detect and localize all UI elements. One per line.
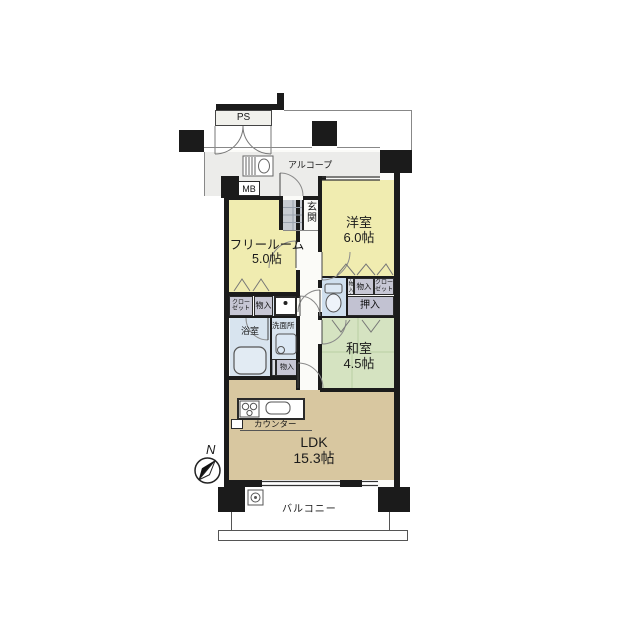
ldk-size: 15.3帖	[279, 450, 349, 466]
washer-pan-icon	[276, 334, 296, 354]
balcony-drain-icon	[248, 490, 263, 505]
window-west-top	[322, 177, 380, 180]
ldk-label: LDK 15.3帖	[279, 434, 349, 466]
western-room-name: 洋室	[329, 216, 389, 231]
western-room-label: 洋室 6.0帖	[329, 216, 389, 246]
western-room-size: 6.0帖	[329, 231, 389, 246]
ldk-name: LDK	[279, 434, 349, 450]
north-compass-icon	[195, 458, 220, 483]
compass-n-label: N	[206, 443, 215, 458]
plan-linework	[0, 0, 640, 640]
toilet-icon	[325, 284, 342, 312]
japanese-room-label: 和室 4.5帖	[329, 342, 389, 372]
counter-label: カウンター	[254, 420, 297, 430]
entrance-label: 玄関	[304, 201, 316, 223]
stove-icon	[240, 401, 259, 417]
bathroom-label: 浴室	[241, 326, 259, 336]
window-ldk-bottom	[262, 480, 378, 487]
entrance-tile-grid	[283, 200, 303, 230]
ps-double-door-icon	[215, 126, 271, 154]
free-room-name: フリールーム	[226, 238, 308, 252]
utility-sink-icon	[243, 156, 273, 176]
folding-door-marks	[234, 264, 393, 332]
floor-plan: PS MB クローゼット 物入 物入 物入 クローゼット 押入 物入	[0, 0, 640, 640]
free-room-size: 5.0帖	[226, 252, 308, 266]
kitchen-sink-icon	[266, 402, 290, 414]
japanese-room-size: 4.5帖	[329, 357, 389, 372]
japanese-room-name: 和室	[329, 342, 389, 357]
alcove-label: アルコープ	[288, 160, 332, 170]
vanity-faucet-icon	[284, 301, 288, 305]
free-room-label: フリールーム 5.0帖	[226, 238, 308, 267]
balcony-label: バルコニー	[282, 504, 337, 516]
bathtub-icon	[234, 347, 266, 374]
washroom-label: 洗面所	[272, 322, 295, 331]
